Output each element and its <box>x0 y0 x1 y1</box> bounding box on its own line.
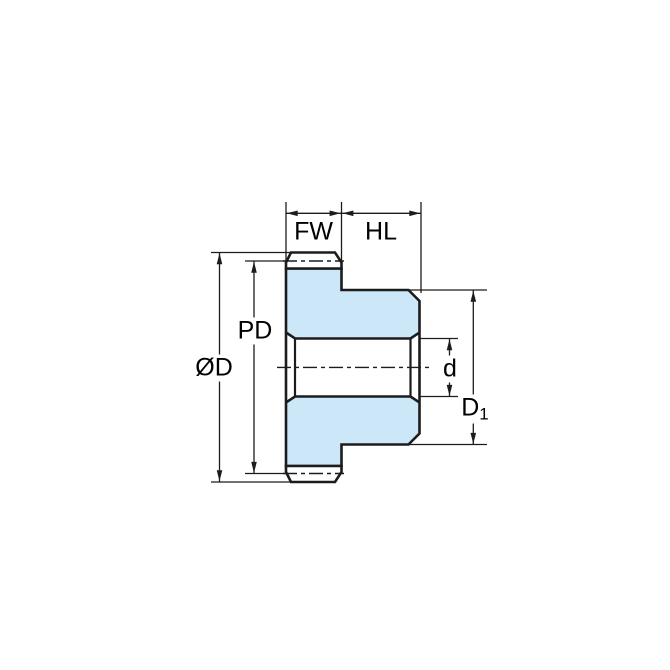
label-hub-diameter-subscript: 1 <box>479 404 488 423</box>
arrowhead-fw-right <box>330 211 341 217</box>
arrowhead-d1-top <box>471 291 477 302</box>
arrowhead-hl-left <box>342 211 353 217</box>
label-hub-diameter: D1 <box>459 394 491 423</box>
label-face-width: FW <box>292 219 335 246</box>
arrowhead-d1-bottom <box>471 433 477 444</box>
gear-diagram <box>0 0 670 670</box>
arrowhead-d-top <box>447 339 453 350</box>
label-hub-diameter-base: D <box>461 393 479 421</box>
arrowhead-fw-left <box>287 211 298 217</box>
arrowhead-od-bottom <box>217 470 223 481</box>
arrowhead-pd-bottom <box>251 462 257 473</box>
label-outside-diameter: ØD <box>193 354 235 381</box>
arrowhead-d-bottom <box>447 385 453 396</box>
label-pitch-diameter: PD <box>236 318 275 345</box>
arrowhead-pd-top <box>251 262 257 273</box>
label-bore-diameter: d <box>441 356 459 383</box>
arrowhead-od-top <box>217 253 223 264</box>
diagram-canvas: FW HL PD ØD d D1 <box>0 0 670 670</box>
label-hub-length: HL <box>363 219 399 246</box>
arrowhead-hl-right <box>409 211 420 217</box>
